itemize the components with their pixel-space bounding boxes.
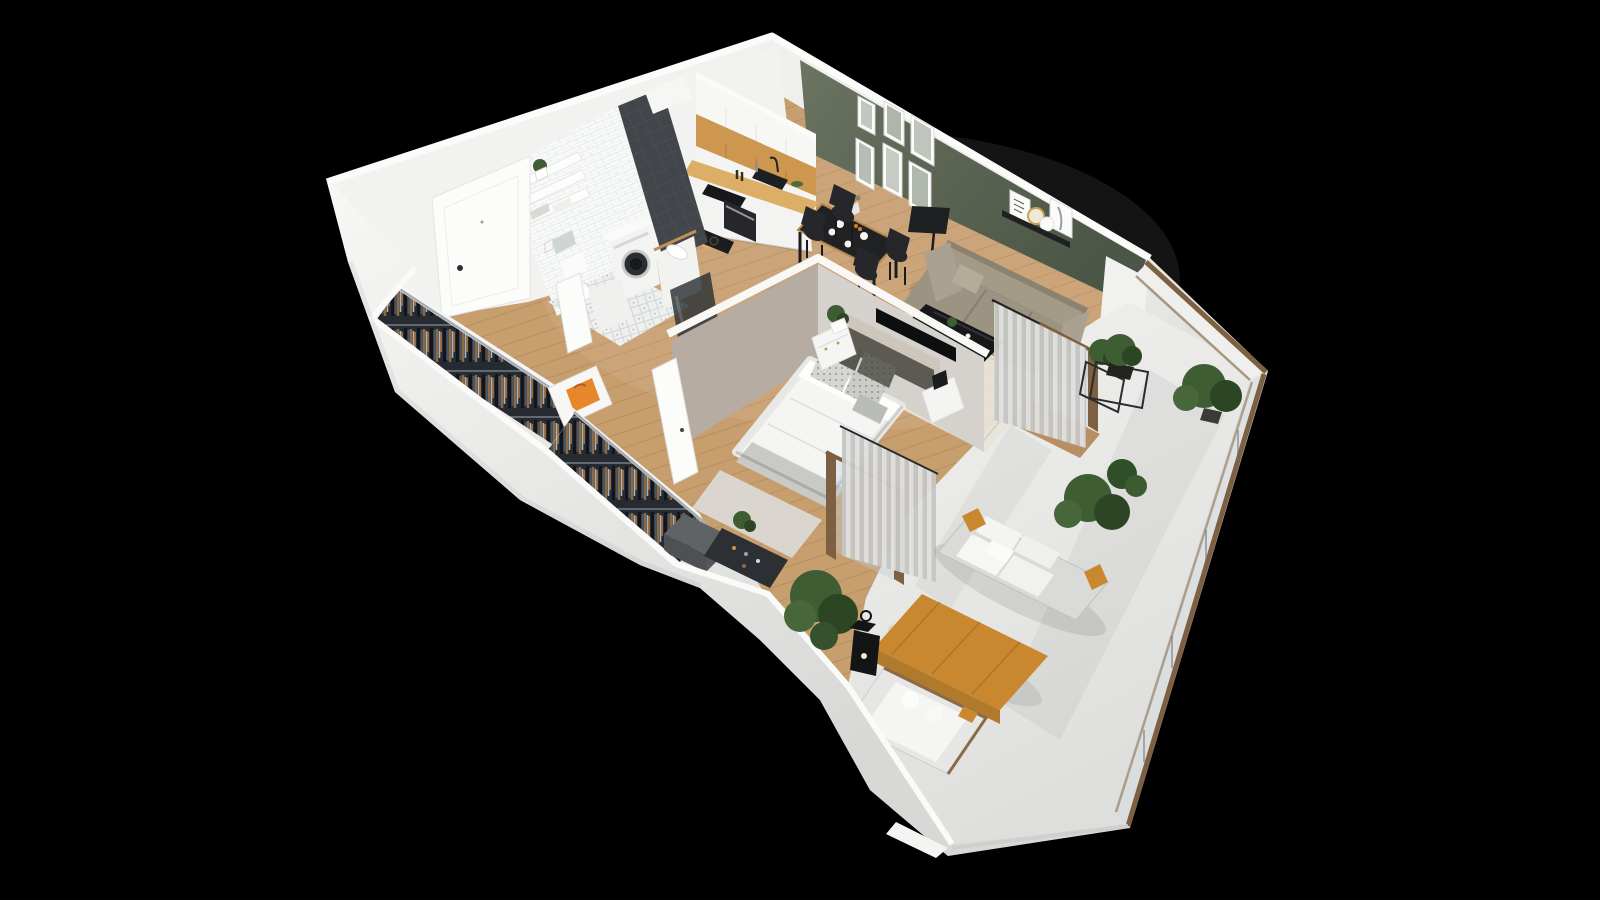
- door-handle: [457, 265, 463, 271]
- lounger-pillow: [925, 705, 943, 723]
- lounger-pillow: [901, 691, 919, 709]
- palm-foliage: [1094, 494, 1130, 530]
- lantern-candle: [861, 653, 867, 659]
- shoe: [744, 552, 748, 556]
- balcony-door-post: [826, 452, 836, 560]
- gold-handle: [837, 342, 840, 345]
- washer-drum: [630, 258, 642, 270]
- gold-handle: [825, 348, 828, 351]
- place-setting: [860, 232, 868, 240]
- rubber-plant: [1125, 475, 1147, 497]
- lamp-shade: [908, 206, 950, 234]
- shoe: [756, 559, 760, 563]
- shrub-foliage: [810, 622, 838, 650]
- palm-foliage: [1054, 500, 1082, 528]
- gallery-frame-art: [886, 147, 899, 193]
- orange-fruit: [858, 227, 862, 231]
- lantern-body: [850, 630, 880, 676]
- gallery-frame-art: [859, 142, 871, 185]
- table-plant: [947, 317, 957, 327]
- palm-foliage: [1173, 385, 1199, 411]
- place-setting: [829, 229, 836, 236]
- record-disc: [710, 237, 718, 245]
- shoe: [732, 546, 736, 550]
- apartment-render: [0, 0, 1600, 900]
- fruit-bowl: [791, 181, 803, 187]
- shrub-foliage: [784, 600, 816, 632]
- place-setting: [845, 241, 852, 248]
- corridor-plant: [744, 520, 756, 532]
- door-handle: [680, 428, 684, 432]
- flowers: [856, 196, 861, 201]
- orange-fruit: [854, 224, 858, 228]
- floorplan-render-canvas: [0, 0, 1600, 900]
- shoe: [742, 564, 746, 568]
- stand-plant: [1122, 346, 1142, 366]
- palm-foliage: [1210, 380, 1242, 412]
- door-peephole: [481, 221, 484, 224]
